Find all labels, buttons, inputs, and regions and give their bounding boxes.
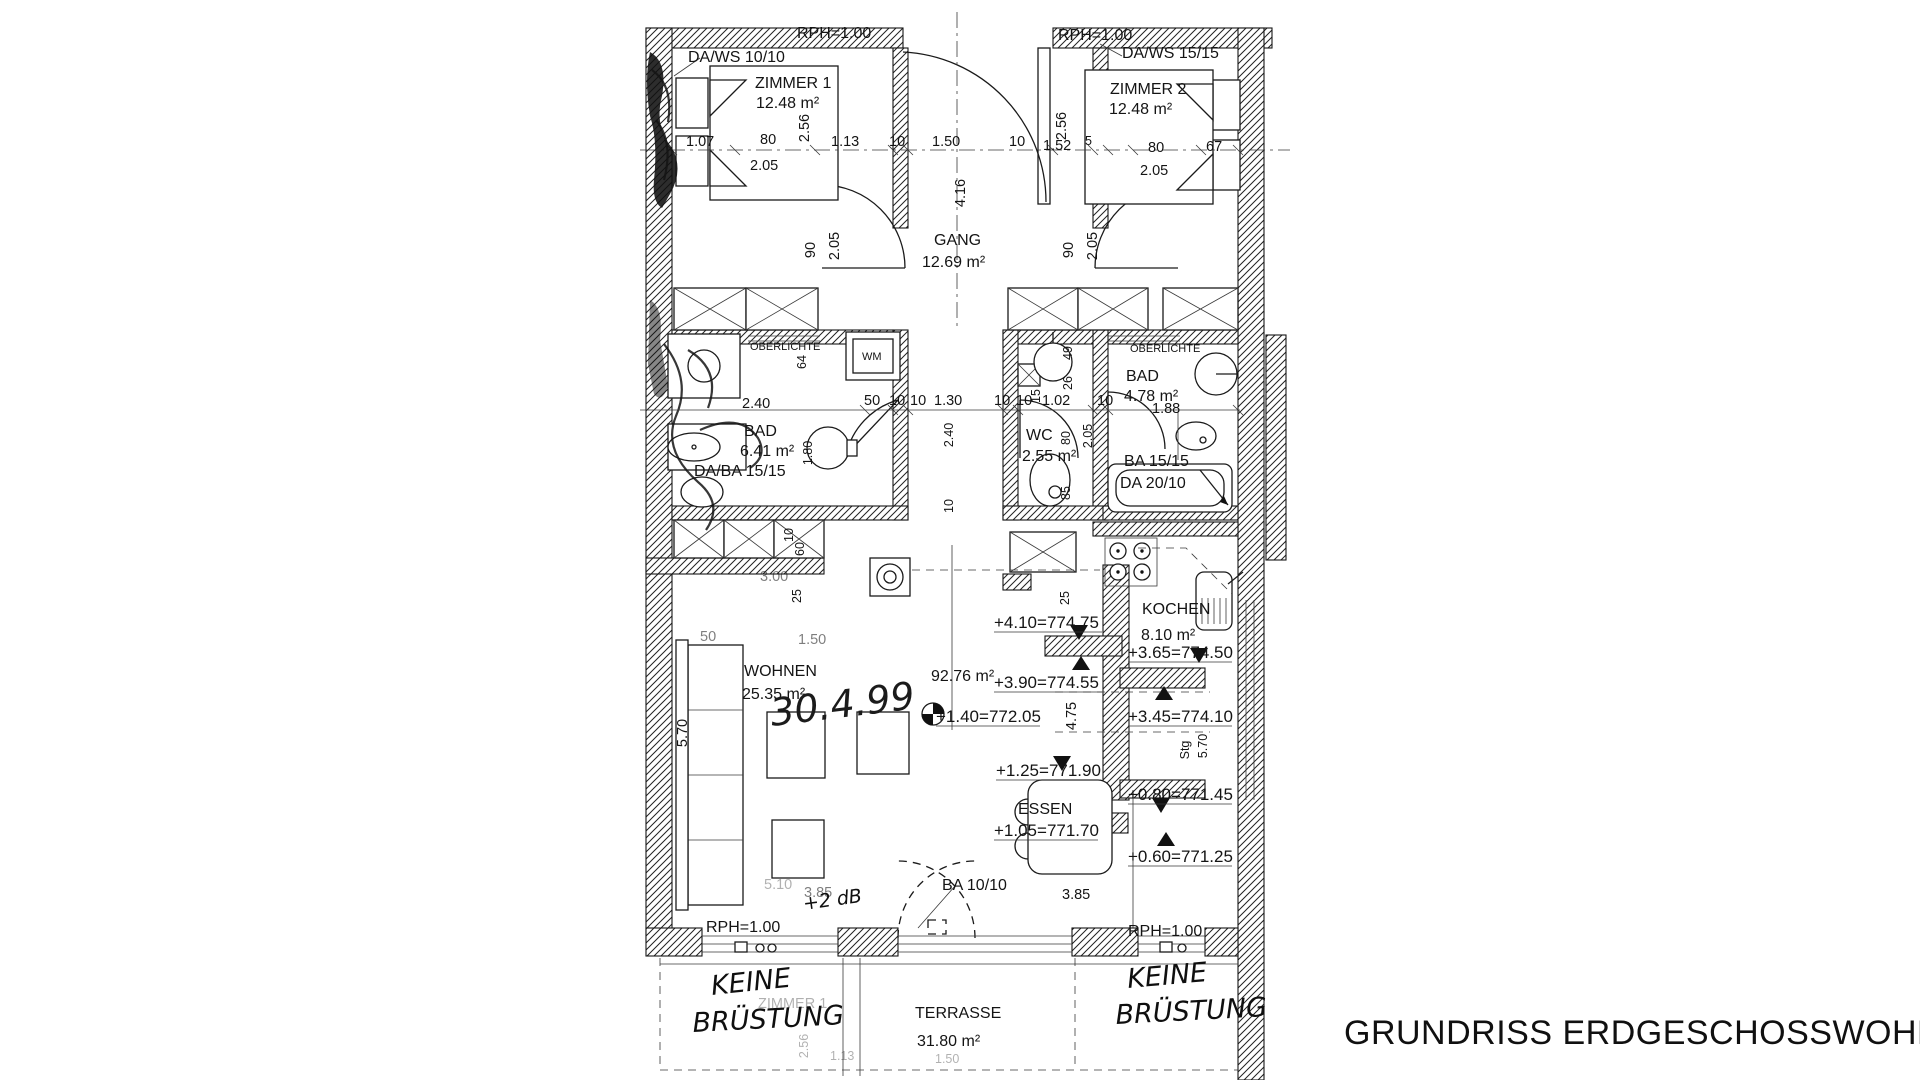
dim: 5.10 (764, 877, 792, 893)
level-l2: +1.40=772.05 (936, 707, 1041, 726)
rph-bottom-right: RPH=1.00 (1128, 923, 1202, 940)
dim: 26 (1061, 376, 1075, 390)
dim: 2.40 (742, 396, 770, 412)
closet-box (674, 288, 746, 330)
dim: 2.05 (1081, 424, 1095, 448)
dim: 10 (782, 528, 796, 542)
kochen-area: 8.10 m² (1141, 627, 1196, 644)
dim: 1.50 (798, 632, 826, 648)
dim: 2.05 (1140, 163, 1168, 179)
closet-box (1078, 288, 1148, 330)
dim: 1.80 (801, 441, 815, 465)
dim: 1.88 (1152, 401, 1180, 417)
oberlichte-1: OBERLICHTE (750, 341, 820, 353)
da-ws-2-label: DA/WS 15/15 (1122, 45, 1219, 62)
dim: 2.05 (750, 158, 778, 174)
shaft-box (674, 520, 724, 558)
stg-label: Stg (1178, 741, 1192, 760)
dim: 80 (760, 132, 776, 148)
dim: 2.05 (827, 232, 843, 260)
dim: 50 (700, 629, 716, 645)
entrance-door (903, 48, 1050, 204)
dim: 10 (1097, 393, 1113, 409)
dim: 10 (910, 393, 926, 409)
dim: 5 (1085, 134, 1092, 148)
closet-box (746, 288, 818, 330)
boiler (870, 558, 910, 596)
terrace-door (898, 861, 975, 938)
level-l1: +3.90=774.55 (994, 673, 1099, 692)
page-title: GRUNDRISS ERDGESCHOSSWOHNUNG (1344, 1014, 1920, 1052)
kochen-name: KOCHEN (1142, 601, 1210, 618)
ghost-dim: 1.50 (935, 1052, 959, 1066)
floor-plan-page: RPH=1.00 DA/WS 10/10 ZIMMER 1 12.48 m² R… (0, 0, 1920, 1080)
terrasse-area: 31.80 m² (917, 1033, 981, 1050)
da-ws-1-label: DA/WS 10/10 (688, 49, 785, 66)
dim: 90 (1061, 242, 1077, 258)
dim: 10 (942, 499, 956, 513)
ghost-zimmer: ZIMMER 1 (758, 996, 827, 1012)
wm-label: WM (862, 351, 882, 363)
dim: 10 (1009, 134, 1025, 150)
bad1-name: BAD (744, 423, 777, 440)
dim: 67 (1206, 139, 1222, 155)
dim: 10 (889, 134, 905, 150)
rph-top-left: RPH=1.00 (797, 25, 871, 42)
bad1-area: 6.41 m² (740, 443, 795, 460)
dim: 5.70 (1196, 734, 1210, 758)
level-r1: +3.45=774.10 (1128, 707, 1233, 726)
zimmer2-area: 12.48 m² (1109, 101, 1173, 118)
closet-box (1163, 288, 1238, 330)
floor-plan-drawing: RPH=1.00 DA/WS 10/10 ZIMMER 1 12.48 m² R… (0, 0, 1920, 1080)
zimmer1-area: 12.48 m² (756, 95, 820, 112)
dim: 85 (1059, 486, 1073, 500)
closet-box (1008, 288, 1078, 330)
dim: 25 (1058, 591, 1072, 605)
dim: 5.70 (675, 719, 691, 747)
wc-name: WC (1026, 427, 1053, 444)
dim: 10 (889, 393, 905, 409)
dim: 80 (1059, 431, 1073, 445)
dim: 1.07 (686, 134, 714, 150)
bad2-name: BAD (1126, 368, 1159, 385)
terrasse-name: TERRASSE (915, 1005, 1001, 1022)
dim: 1.02 (1042, 393, 1070, 409)
gang-area: 12.69 m² (922, 254, 986, 271)
dim: 15 (1029, 389, 1043, 403)
rph-bottom-left: RPH=1.00 (706, 919, 780, 936)
dim: 50 (864, 393, 880, 409)
dim: 1.13 (831, 134, 859, 150)
level-r2: +0.80=771.45 (1128, 785, 1233, 804)
ba-10-label: BA 10/10 (942, 877, 1007, 894)
dim: 80 (1148, 140, 1164, 156)
da-ba-label: DA/BA 15/15 (694, 463, 786, 480)
dim: 1.50 (932, 134, 960, 150)
level-r0: +3.65=774.50 (1128, 643, 1233, 662)
dim: 2.56 (1054, 112, 1070, 140)
oberlichte-2: OBERLICHTE (1130, 343, 1200, 355)
dim: 1.30 (934, 393, 962, 409)
level-l4: +1.05=771.70 (994, 821, 1099, 840)
dim: 90 (803, 242, 819, 258)
zimmer1-name: ZIMMER 1 (755, 75, 832, 92)
ghost-dim: 2.56 (797, 1034, 811, 1058)
shaft-box (724, 520, 774, 558)
dim: 2.05 (1085, 232, 1101, 260)
zimmer2-name: ZIMMER 2 (1110, 81, 1187, 98)
dim: 10 (994, 393, 1010, 409)
dim: 25 (790, 589, 804, 603)
dim: 64 (795, 355, 809, 369)
dim: 3.00 (760, 569, 788, 585)
dim: 3.85 (1062, 887, 1090, 903)
level-r3: +0.60=771.25 (1128, 847, 1233, 866)
level-l3: +1.25=771.90 (996, 761, 1101, 780)
shaft-box (1010, 532, 1076, 572)
dim: 4.75 (1064, 702, 1080, 730)
dim: 2.56 (797, 114, 813, 142)
dim: 60 (793, 542, 807, 556)
essen-name: ESSEN (1018, 801, 1072, 818)
da-20-label: DA 20/10 (1120, 475, 1186, 492)
rph-top-right: RPH=1.00 (1058, 27, 1132, 44)
gang-name: GANG (934, 232, 981, 249)
total-area: 92.76 m² (931, 668, 995, 685)
dim: 2.40 (942, 423, 956, 447)
ghost-dim: 1.13 (830, 1049, 854, 1063)
level-l0: +4.10=774.75 (994, 613, 1099, 632)
wc-area: 2.55 m² (1022, 448, 1077, 465)
ba-15-label: BA 15/15 (1124, 453, 1189, 470)
wohnen-name: WOHNEN (744, 663, 817, 680)
dim: 4.16 (953, 179, 969, 207)
handwritten-keine-right: KEINE (1126, 957, 1208, 995)
dim: 49 (1061, 346, 1075, 360)
